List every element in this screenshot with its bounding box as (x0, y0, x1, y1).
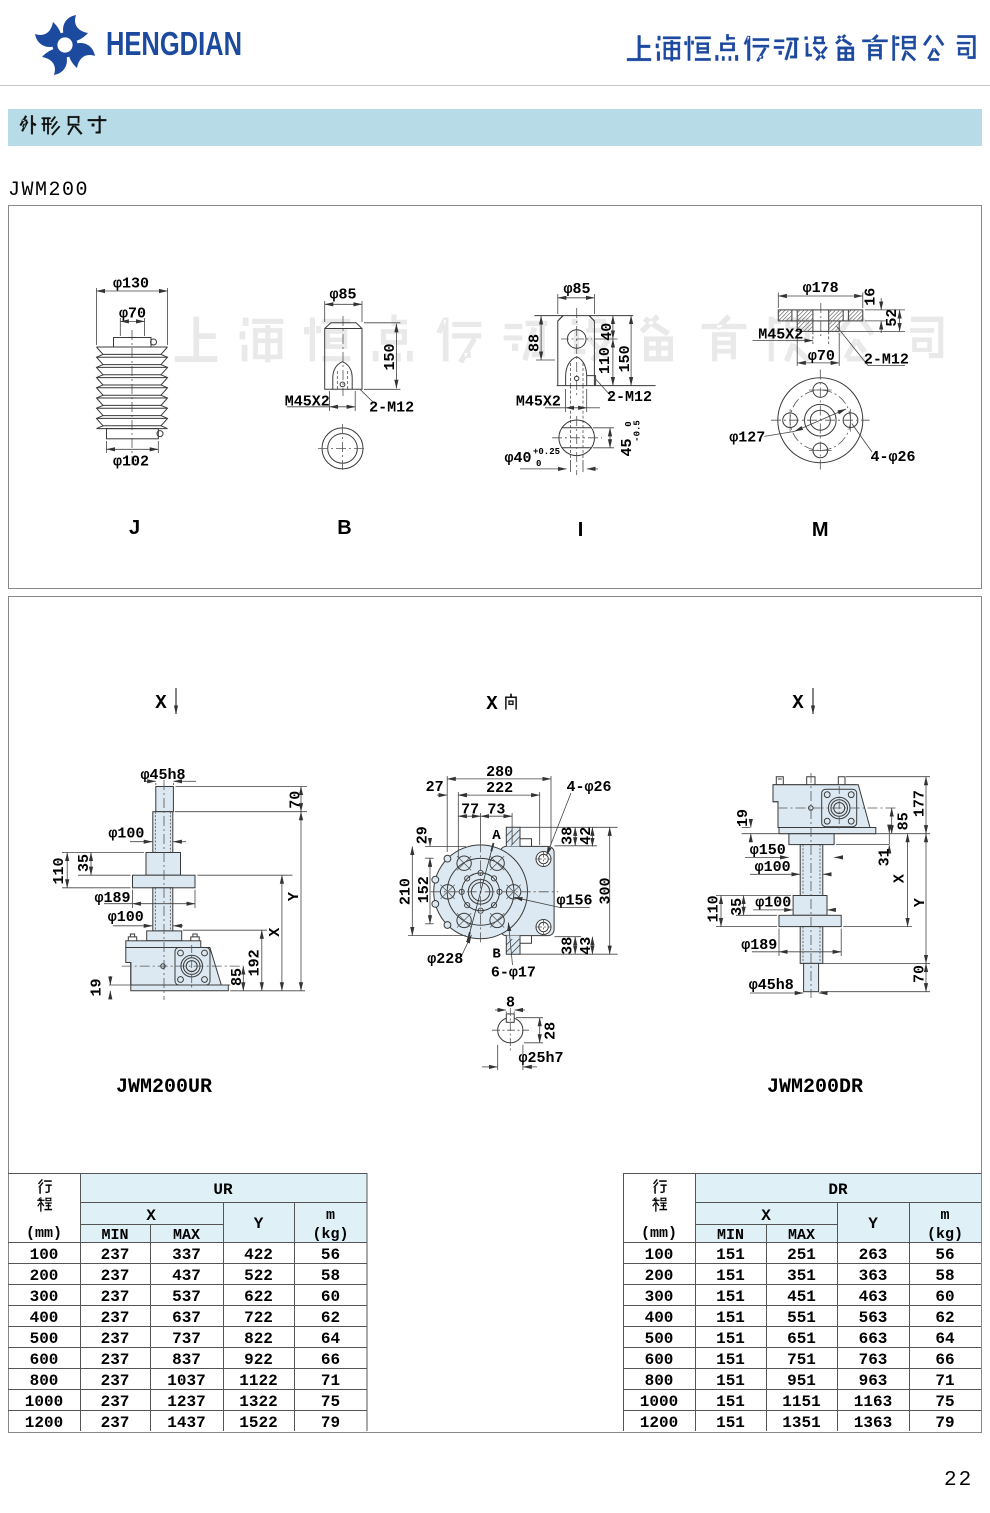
svg-text:237: 237 (101, 1288, 130, 1306)
svg-text:300: 300 (30, 1288, 59, 1306)
svg-text:φ40: φ40 (504, 450, 531, 467)
svg-text:Y: Y (286, 892, 303, 901)
svg-text:M45X2: M45X2 (285, 394, 330, 411)
svg-text:177: 177 (911, 790, 928, 817)
svg-text:437: 437 (172, 1267, 201, 1285)
svg-text:79: 79 (935, 1414, 954, 1432)
svg-text:62: 62 (321, 1309, 340, 1327)
svg-text:822: 822 (244, 1330, 273, 1348)
svg-text:237: 237 (101, 1246, 130, 1264)
svg-text:71: 71 (321, 1372, 340, 1390)
svg-text:φ189: φ189 (94, 890, 130, 907)
svg-text:151: 151 (716, 1246, 745, 1264)
svg-text:800: 800 (645, 1372, 674, 1390)
svg-text:800: 800 (30, 1372, 59, 1390)
svg-text:100: 100 (645, 1246, 674, 1264)
svg-text:X: X (267, 928, 284, 937)
svg-text:35: 35 (76, 854, 93, 872)
svg-text:φ156: φ156 (556, 893, 592, 910)
svg-text:100: 100 (30, 1246, 59, 1264)
svg-text:737: 737 (172, 1330, 201, 1348)
svg-text:651: 651 (787, 1330, 816, 1348)
svg-text:110: 110 (597, 347, 614, 374)
svg-text:4-φ26: 4-φ26 (870, 449, 915, 466)
svg-text:28: 28 (543, 1022, 560, 1040)
svg-text:151: 151 (716, 1393, 745, 1411)
svg-text:MIN: MIN (101, 1227, 128, 1244)
svg-text:58: 58 (935, 1267, 954, 1285)
svg-text:200: 200 (645, 1267, 674, 1285)
svg-text:1200: 1200 (25, 1414, 63, 1432)
svg-text:85: 85 (896, 812, 913, 830)
svg-text:56: 56 (935, 1246, 954, 1264)
svg-text:500: 500 (30, 1330, 59, 1348)
svg-text:16: 16 (862, 288, 879, 306)
svg-text:451: 451 (787, 1288, 816, 1306)
svg-text:40: 40 (599, 323, 616, 341)
svg-text:79: 79 (321, 1414, 340, 1432)
svg-text:300: 300 (598, 877, 615, 904)
svg-text:φ45h8: φ45h8 (749, 977, 794, 994)
svg-text:66: 66 (321, 1351, 340, 1369)
svg-text:222: 222 (486, 780, 513, 797)
svg-text:m: m (940, 1207, 949, 1224)
svg-text:537: 537 (172, 1288, 201, 1306)
svg-text:963: 963 (859, 1372, 888, 1390)
svg-text:X: X (486, 693, 498, 715)
svg-text:1363: 1363 (854, 1414, 892, 1432)
svg-text:MIN: MIN (717, 1227, 744, 1244)
svg-text:φ100: φ100 (755, 859, 791, 876)
svg-text:31: 31 (877, 848, 894, 866)
svg-text:151: 151 (716, 1330, 745, 1348)
svg-text:522: 522 (244, 1267, 273, 1285)
svg-text:151: 151 (716, 1351, 745, 1369)
svg-text:φ70: φ70 (808, 348, 835, 365)
svg-text:722: 722 (244, 1309, 273, 1327)
svg-text:600: 600 (645, 1351, 674, 1369)
svg-text:150: 150 (617, 345, 634, 372)
svg-text:2-M12: 2-M12 (369, 400, 414, 417)
svg-text:1351: 1351 (782, 1414, 820, 1432)
svg-text:237: 237 (101, 1267, 130, 1285)
svg-text:2-M12: 2-M12 (864, 351, 909, 368)
svg-text:837: 837 (172, 1351, 201, 1369)
svg-text:A: A (492, 828, 501, 844)
svg-text:UR: UR (213, 1181, 233, 1199)
svg-text:237: 237 (101, 1351, 130, 1369)
svg-text:77: 77 (461, 802, 479, 819)
svg-text:200: 200 (30, 1267, 59, 1285)
svg-text:400: 400 (645, 1309, 674, 1327)
svg-text:70: 70 (288, 791, 305, 809)
svg-text:151: 151 (716, 1309, 745, 1327)
svg-text:237: 237 (101, 1393, 130, 1411)
svg-text:+0.25: +0.25 (533, 447, 560, 457)
svg-text:M: M (812, 519, 829, 541)
svg-text:6-φ17: 6-φ17 (491, 965, 536, 982)
svg-text:600: 600 (30, 1351, 59, 1369)
svg-text:663: 663 (859, 1330, 888, 1348)
svg-text:8: 8 (506, 994, 515, 1011)
svg-text:19: 19 (735, 809, 752, 827)
svg-text:43: 43 (578, 937, 595, 955)
svg-text:52: 52 (884, 309, 901, 327)
svg-text:X: X (892, 874, 909, 883)
svg-text:110: 110 (706, 895, 723, 922)
svg-text:Y: Y (912, 898, 929, 907)
svg-text:M45X2: M45X2 (516, 394, 561, 411)
svg-text:19: 19 (89, 978, 106, 996)
svg-text:X: X (146, 1207, 156, 1225)
svg-text:88: 88 (526, 334, 543, 352)
svg-text:400: 400 (30, 1309, 59, 1327)
svg-text:151: 151 (716, 1288, 745, 1306)
svg-text:64: 64 (935, 1330, 955, 1348)
svg-text:1322: 1322 (239, 1393, 277, 1411)
svg-text:HENGDIAN: HENGDIAN (106, 25, 242, 62)
svg-text:φ25h7: φ25h7 (518, 1050, 563, 1067)
svg-text:75: 75 (321, 1393, 340, 1411)
svg-text:70: 70 (911, 965, 928, 983)
svg-text:85: 85 (229, 968, 246, 986)
svg-text:751: 751 (787, 1351, 816, 1369)
svg-text:1237: 1237 (167, 1393, 205, 1411)
svg-text:(kg): (kg) (927, 1226, 963, 1243)
svg-text:263: 263 (859, 1246, 888, 1264)
svg-text:151: 151 (716, 1372, 745, 1390)
svg-text:60: 60 (935, 1288, 954, 1306)
svg-text:1122: 1122 (239, 1372, 277, 1390)
svg-text:0: 0 (536, 459, 541, 469)
svg-text:152: 152 (416, 876, 433, 903)
svg-text:X: X (761, 1207, 771, 1225)
svg-text:-0.5: -0.5 (633, 420, 643, 442)
svg-text:1151: 1151 (782, 1393, 820, 1411)
svg-text:1163: 1163 (854, 1393, 892, 1411)
svg-text:60: 60 (321, 1288, 340, 1306)
svg-text:JWM200DR: JWM200DR (767, 1076, 863, 1099)
svg-text:φ45h8: φ45h8 (140, 767, 185, 784)
svg-text:φ178: φ178 (803, 280, 839, 297)
svg-text:2-M12: 2-M12 (607, 389, 652, 406)
svg-text:237: 237 (101, 1372, 130, 1390)
svg-text:φ130: φ130 (113, 276, 149, 293)
svg-text:38: 38 (560, 937, 577, 955)
svg-text:1000: 1000 (25, 1393, 63, 1411)
svg-text:φ100: φ100 (108, 826, 144, 843)
svg-text:27: 27 (426, 779, 444, 796)
svg-text:φ102: φ102 (113, 454, 149, 471)
svg-text:363: 363 (859, 1267, 888, 1285)
svg-text:110: 110 (51, 857, 68, 884)
svg-text:4-φ26: 4-φ26 (566, 779, 611, 796)
svg-text:237: 237 (101, 1309, 130, 1327)
svg-text:φ85: φ85 (329, 287, 356, 304)
svg-text:29: 29 (414, 826, 431, 844)
svg-text:38: 38 (560, 827, 577, 845)
svg-text:B: B (492, 947, 501, 963)
svg-text:(mm): (mm) (26, 1225, 62, 1242)
svg-text:56: 56 (321, 1246, 340, 1264)
svg-text:42: 42 (578, 827, 595, 845)
svg-text:MAX: MAX (173, 1227, 200, 1244)
svg-text:563: 563 (859, 1309, 888, 1327)
svg-text:35: 35 (729, 898, 746, 916)
svg-text:M45X2: M45X2 (758, 326, 803, 343)
svg-text:64: 64 (321, 1330, 341, 1348)
svg-text:66: 66 (935, 1351, 954, 1369)
svg-text:I: I (578, 519, 584, 541)
svg-text:1522: 1522 (239, 1414, 277, 1432)
svg-text:151: 151 (716, 1414, 745, 1432)
svg-text:(mm): (mm) (641, 1225, 677, 1242)
svg-text:551: 551 (787, 1309, 816, 1327)
svg-text:φ150: φ150 (750, 842, 786, 859)
svg-text:237: 237 (101, 1414, 130, 1432)
svg-text:1000: 1000 (640, 1393, 678, 1411)
svg-text:237: 237 (101, 1330, 130, 1348)
svg-text:m: m (326, 1207, 335, 1224)
svg-text:φ189: φ189 (741, 937, 777, 954)
svg-text:X: X (155, 692, 167, 714)
svg-text:951: 951 (787, 1372, 816, 1390)
svg-text:(kg): (kg) (312, 1226, 348, 1243)
svg-text:337: 337 (172, 1246, 201, 1264)
svg-text:B: B (337, 517, 351, 539)
svg-text:φ100: φ100 (108, 909, 144, 926)
svg-text:71: 71 (935, 1372, 954, 1390)
svg-text:1200: 1200 (640, 1414, 678, 1432)
svg-text:1037: 1037 (167, 1372, 205, 1390)
svg-text:62: 62 (935, 1309, 954, 1327)
svg-text:351: 351 (787, 1267, 816, 1285)
svg-text:251: 251 (787, 1246, 816, 1264)
svg-text:922: 922 (244, 1351, 273, 1369)
svg-text:φ127: φ127 (729, 429, 765, 446)
svg-text:φ85: φ85 (563, 281, 590, 298)
svg-text:Y: Y (254, 1215, 264, 1233)
svg-text:463: 463 (859, 1288, 888, 1306)
svg-text:422: 422 (244, 1246, 273, 1264)
svg-text:637: 637 (172, 1309, 201, 1327)
svg-text:MAX: MAX (788, 1227, 815, 1244)
svg-text:500: 500 (645, 1330, 674, 1348)
svg-text:73: 73 (487, 802, 505, 819)
svg-text:φ70: φ70 (119, 306, 146, 323)
svg-text:192: 192 (247, 949, 264, 976)
svg-text:622: 622 (244, 1288, 273, 1306)
svg-text:763: 763 (859, 1351, 888, 1369)
svg-text:210: 210 (397, 878, 414, 905)
svg-text:75: 75 (935, 1393, 954, 1411)
svg-text:151: 151 (716, 1267, 745, 1285)
svg-text:X: X (792, 692, 804, 714)
svg-text:φ100: φ100 (755, 894, 791, 911)
svg-text:J: J (129, 517, 140, 539)
svg-text:280: 280 (486, 764, 513, 781)
svg-text:300: 300 (645, 1288, 674, 1306)
svg-text:JWM200UR: JWM200UR (116, 1076, 212, 1099)
svg-text:Y: Y (868, 1215, 878, 1233)
svg-text:1437: 1437 (167, 1414, 205, 1432)
svg-text:φ228: φ228 (427, 951, 463, 968)
svg-text:58: 58 (321, 1267, 340, 1285)
svg-text:150: 150 (382, 343, 399, 370)
svg-text:DR: DR (828, 1181, 848, 1199)
